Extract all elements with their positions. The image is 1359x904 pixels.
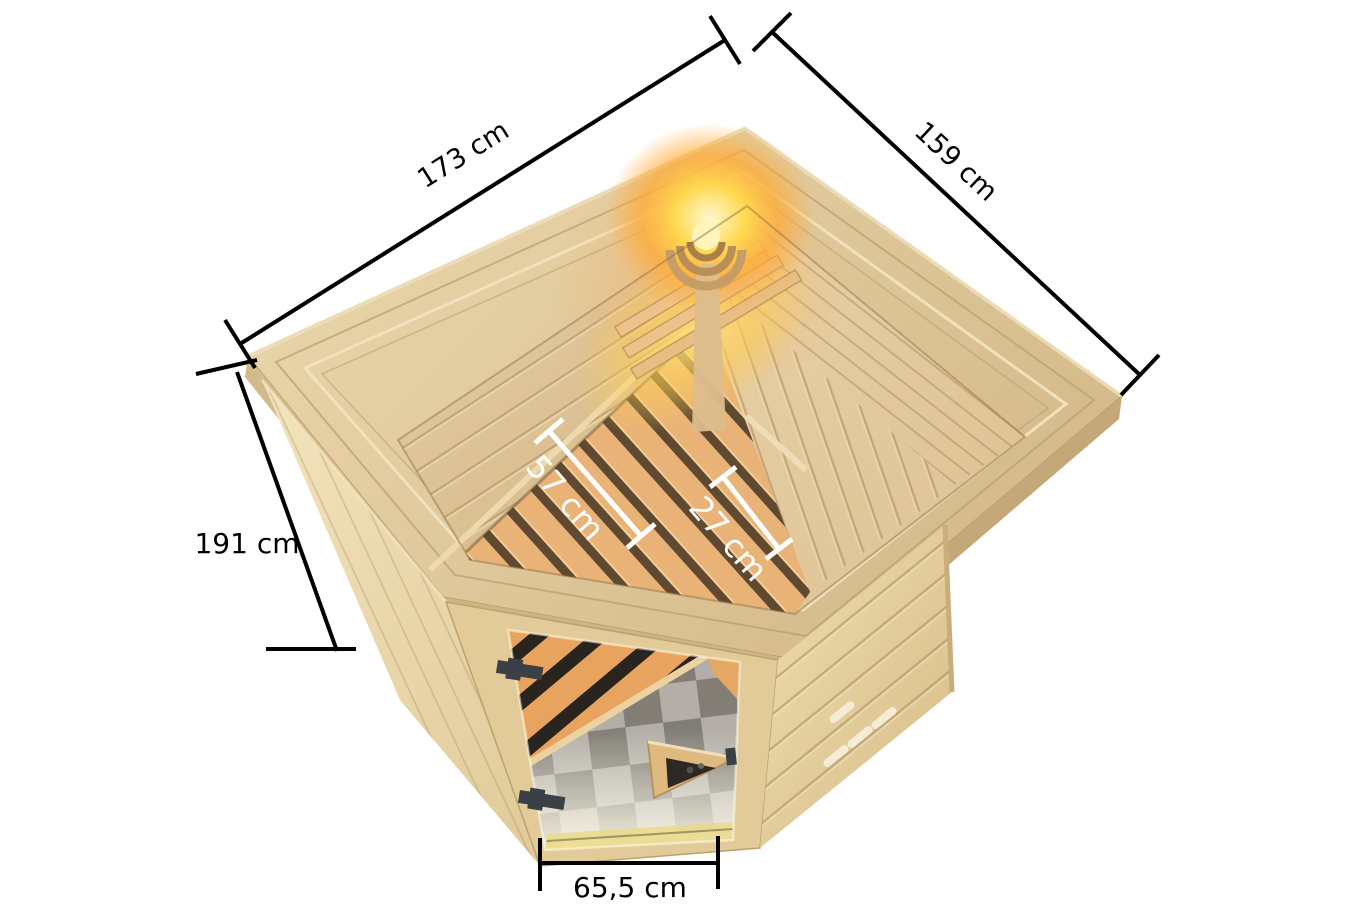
- sauna-dimension-diagram: 173 cm 159 cm 191 cm 65,5 cm 57 cm 27 cm: [0, 0, 1359, 904]
- label-door-width: 65,5 cm: [573, 871, 687, 904]
- door-latch: [725, 748, 737, 766]
- door-glass: [508, 628, 740, 850]
- label-left-edge: 191 cm: [194, 527, 299, 560]
